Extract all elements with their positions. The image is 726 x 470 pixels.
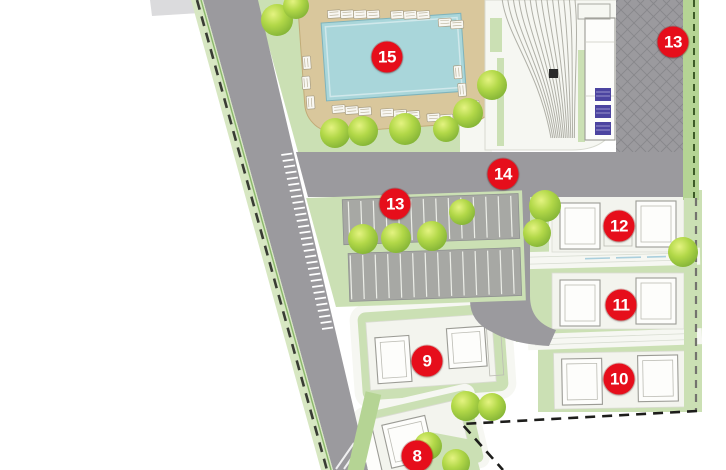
sun-lounger-icon bbox=[450, 20, 464, 29]
sun-lounger-icon bbox=[302, 76, 311, 90]
tree-icon bbox=[433, 116, 459, 142]
marker-8: 8 bbox=[402, 441, 433, 470]
marker-13-parking-label: 13 bbox=[386, 194, 404, 214]
marker-13-road: 13 bbox=[658, 27, 689, 58]
solar-panels bbox=[595, 88, 611, 135]
sun-lounger-icon bbox=[302, 56, 311, 70]
marker-13-parking: 13 bbox=[380, 189, 411, 220]
sun-lounger-icon bbox=[332, 105, 346, 114]
clubhouse-building bbox=[485, 0, 618, 150]
tree-icon bbox=[668, 237, 698, 267]
tree-icon bbox=[529, 190, 561, 222]
sun-lounger-icon bbox=[327, 10, 341, 19]
marker-14-label: 14 bbox=[494, 164, 512, 184]
marker-12-label: 12 bbox=[610, 216, 628, 236]
marker-9: 9 bbox=[412, 346, 443, 377]
tree-icon bbox=[389, 113, 421, 145]
tree-icon bbox=[320, 118, 350, 148]
sun-lounger-icon bbox=[417, 10, 431, 19]
sun-lounger-icon bbox=[306, 96, 315, 110]
sun-lounger-icon bbox=[366, 10, 380, 19]
sun-lounger-icon bbox=[403, 10, 417, 19]
sun-lounger-icon bbox=[380, 108, 394, 117]
sun-lounger-icon bbox=[453, 65, 462, 79]
sun-lounger-icon bbox=[390, 10, 404, 19]
sun-lounger-icon bbox=[353, 10, 367, 19]
tree-icon bbox=[477, 70, 507, 100]
marker-9-label: 9 bbox=[423, 351, 432, 371]
sun-lounger-icon bbox=[358, 107, 372, 116]
tree-icon bbox=[478, 393, 506, 421]
marker-12: 12 bbox=[604, 211, 635, 242]
marker-15: 15 bbox=[372, 42, 403, 73]
tree-icon bbox=[451, 391, 481, 421]
marker-10-label: 10 bbox=[610, 369, 628, 389]
marker-11: 11 bbox=[606, 290, 637, 321]
marker-13-road-label: 13 bbox=[664, 32, 682, 52]
elevator-core bbox=[549, 69, 558, 78]
sun-lounger-icon bbox=[345, 106, 359, 115]
marker-11-label: 11 bbox=[613, 295, 630, 315]
sun-lounger-icon bbox=[340, 10, 354, 19]
site-plan: 15 13 14 13 12 11 10 9 8 bbox=[0, 0, 726, 470]
tree-icon bbox=[449, 199, 475, 225]
tree-icon bbox=[417, 221, 447, 251]
marker-10: 10 bbox=[604, 364, 635, 395]
tree-icon bbox=[381, 223, 411, 253]
marker-14: 14 bbox=[488, 159, 519, 190]
parking-lot-13 bbox=[306, 190, 526, 307]
tree-icon bbox=[523, 219, 551, 247]
marker-15-label: 15 bbox=[378, 47, 396, 67]
tree-icon bbox=[348, 116, 378, 146]
sun-lounger-icon bbox=[458, 83, 467, 97]
marker-8-label: 8 bbox=[413, 446, 422, 466]
sun-lounger-icon bbox=[438, 18, 452, 27]
tree-icon bbox=[348, 224, 378, 254]
